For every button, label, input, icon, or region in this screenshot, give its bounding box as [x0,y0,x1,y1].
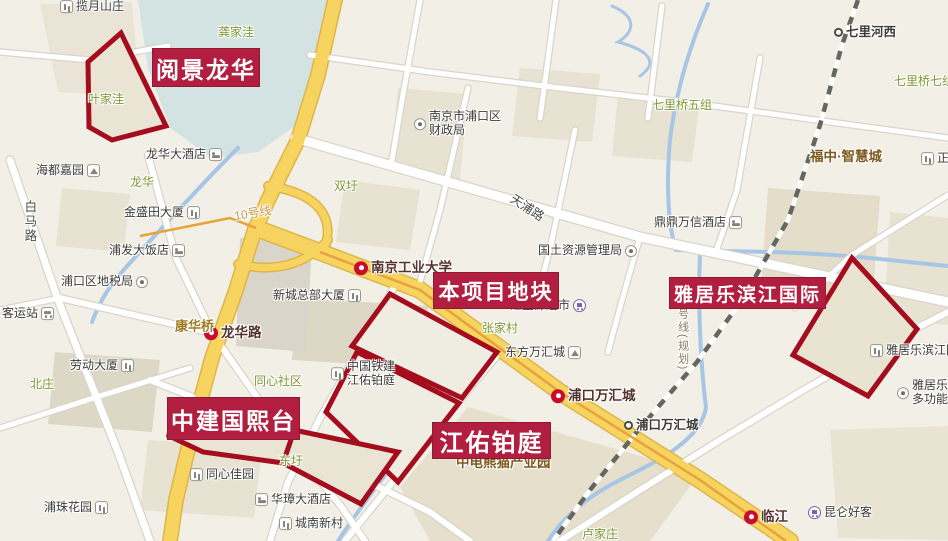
bldg-icon [921,152,934,165]
poi-label-text: 华璋大酒店 [271,493,331,507]
poi-label-text: 福中·智慧城 [810,149,882,165]
cart-icon [573,299,586,312]
poi-label-text: 南京市浦口区财政局 [429,110,501,138]
poi-label: 昆仑好客 [808,506,872,520]
gov-icon [625,245,637,257]
poi-label: 雅居乐滨江国 [870,344,948,358]
poi-label-text: 国土资源管理局 [538,244,622,258]
poi-label-text: 鼎鼎万信酒店 [654,216,726,230]
poi-label-text: 龙华路 [221,325,262,341]
poi-label: 双圩 [334,180,358,194]
poi-label-text: 七里河西 [846,25,896,39]
poi-label: 国土资源管理局 [538,244,637,258]
cart-icon [808,506,821,519]
bldg-icon [190,468,203,481]
bldg-icon [95,501,108,514]
poi-label-text: 海都嘉园 [36,164,84,178]
poi-label-text: 龙华 [130,176,154,190]
poi-label-text: 中国铁建 [347,360,395,374]
poi-label-text: 雅居乐滨多功能酒 [912,379,948,407]
poi-label: 华璋大酒店 [255,493,331,507]
poi-label: 浦口万汇城 [551,388,636,404]
map-canvas[interactable]: 揽月山庄龚家洼叶家洼龙华海都嘉园龙华大酒店金盛田大厦浦发大饭店浦口区地税局客运站… [0,0,948,541]
poi-label-text: 金盛田大厦 [124,206,184,220]
poi-label: 龙华大酒店 [146,148,222,162]
poi-label: 揽月山庄 [60,0,124,14]
bldg-icon [348,289,361,302]
poi-label-text: 劳动大厦 [70,359,118,373]
annotation-box: 阅景龙华 [152,48,260,87]
poi-label: 七里桥七组 [894,75,948,89]
bus-icon [41,307,54,320]
poi-label-text: 白马路 [22,200,36,244]
poi-label: 同心社区 [254,375,302,389]
gov-icon [897,387,909,399]
poi-label-text: 康华桥 [175,320,214,335]
gov-icon [136,276,148,288]
poi-label-text: 南京市浦口区 [429,110,501,124]
poi-label: 海都嘉园 [36,164,100,178]
poi-label: 中国铁建江佑铂庭 [331,360,395,388]
hotel-icon [255,493,268,506]
poi-label: 浦发大饭店 [109,244,185,258]
poi-label: 七里河西 [834,25,896,39]
poi-label: 浦珠花园 [44,501,108,515]
mtn-icon [568,346,581,359]
poi-label: 福中·智慧城 [810,149,882,165]
poi-label: 同心佳园 [190,468,254,482]
bldg-icon [121,359,134,372]
poi-label: 正 [921,152,948,166]
poi-label-text: 城南新村 [295,517,343,531]
poi-label-text: 雅居乐滨 [912,379,948,393]
poi-label-text: 龙华大酒店 [146,148,206,162]
poi-label-text: 正 [937,152,948,166]
annotation-box: 本项目地块 [433,272,559,309]
poi-label: 南京市浦口区财政局 [414,110,501,138]
hotel-icon [209,148,222,161]
poi-label-text: 昆仑好客 [824,506,872,520]
annotation-box: 中建国熙台 [167,397,300,440]
poi-label: 金盛田大厦 [124,206,200,220]
rail-icon [834,28,843,37]
poi-label: 鼎鼎万信酒店 [654,216,742,230]
poi-label-text: 张家村 [482,322,518,336]
poi-label-text: 揽月山庄 [76,0,124,14]
poi-label-text: 雅居乐滨江国 [886,344,948,358]
poi-label-text: 浦珠花园 [44,501,92,515]
poi-label-text: 东圩 [279,455,303,469]
bldg-icon [60,0,73,13]
poi-label: 东方万汇城 [505,346,581,360]
poi-label-text: 临江 [761,509,788,525]
poi-label-text: 江佑铂庭 [347,374,395,388]
bldg-icon [331,368,344,381]
poi-label: 雅居乐滨多功能酒 [897,379,948,407]
poi-label-text: 叶家洼 [88,93,124,107]
poi-label: 龙华 [130,176,154,190]
poi-label-text: 同心社区 [254,375,302,389]
poi-label: 康华桥 [175,320,214,335]
poi-label: 北庄 [30,378,54,392]
poi-label: 白马路 [22,200,36,244]
poi-label: 临江 [744,509,788,525]
poi-label-text: 财政局 [429,124,501,138]
poi-label-text: 浦发大饭店 [109,244,169,258]
rail-icon [624,421,633,430]
bldg-icon [279,517,292,530]
poi-label: 浦口万汇城 [624,418,699,432]
gov-icon [414,118,426,130]
metro-icon [744,510,758,524]
bldg-icon [870,344,883,357]
poi-label: 卢家庄 [582,528,618,541]
poi-label: 新城总部大厦 [273,289,361,303]
poi-label-text: 浦口区地税局 [61,275,133,289]
poi-label-text: 浦口万汇城 [568,388,636,404]
poi-label-text: 七里桥七组 [894,75,948,89]
poi-label: 号线(规划) [676,308,689,371]
poi-label: 张家村 [482,322,518,336]
poi-label: 叶家洼 [88,93,124,107]
poi-label-text: 中国铁建江佑铂庭 [347,360,395,388]
poi-label-text: 卢家庄 [582,528,618,541]
poi-label: 东圩 [279,455,303,469]
poi-label: 浦口区地税局 [61,275,148,289]
poi-label: 七里桥五组 [652,99,712,113]
poi-label-text: 双圩 [334,180,358,194]
poi-label: 劳动大厦 [70,359,134,373]
poi-label: 客运站 [2,307,54,321]
mtn-icon [87,164,100,177]
annotation-box: 雅居乐滨江国际 [669,277,826,309]
poi-label-text: 客运站 [2,307,38,321]
poi-label-text: 多功能酒 [912,393,948,407]
hotel-icon [172,244,185,257]
hotel-icon [729,216,742,229]
poi-label-text: 北庄 [30,378,54,392]
poi-label-text: 号线(规划) [676,308,689,371]
poi-label-text: 同心佳园 [206,468,254,482]
poi-label-text: 东方万汇城 [505,346,565,360]
metro-icon [551,389,565,403]
annotation-box: 江佑铂庭 [432,422,551,459]
poi-label-text: 浦口万汇城 [636,418,699,432]
poi-label: 城南新村 [279,517,343,531]
poi-label: 龚家洼 [218,26,254,40]
bldg-icon [187,206,200,219]
poi-label-text: 新城总部大厦 [273,289,345,303]
metro-icon [354,261,368,275]
poi-label-text: 七里桥五组 [652,99,712,113]
poi-label-text: 龚家洼 [218,26,254,40]
